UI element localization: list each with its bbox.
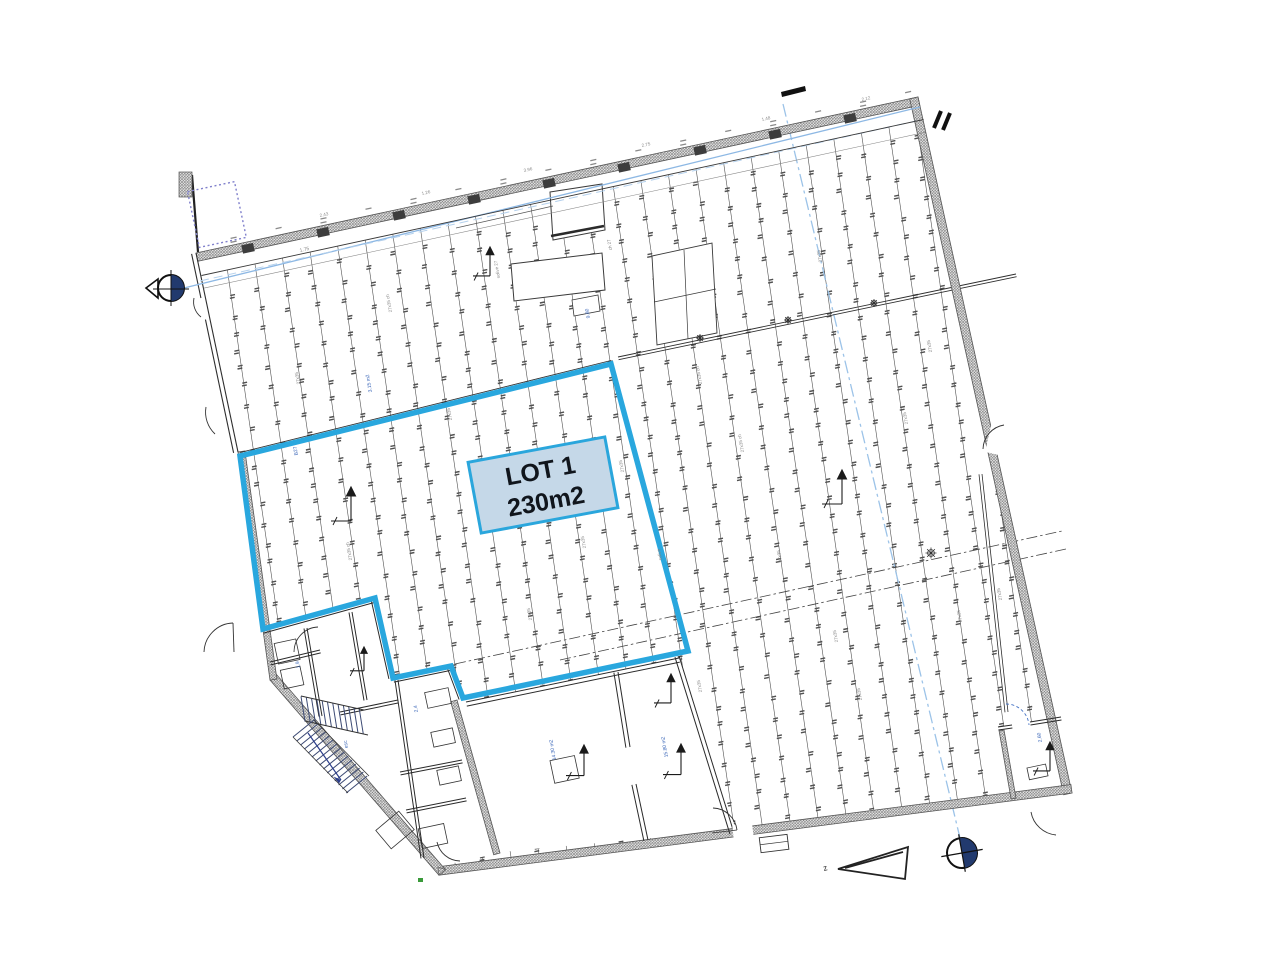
svg-text:2.4: 2.4 (413, 705, 420, 713)
svg-text:1.9: 1.9 (295, 661, 302, 669)
